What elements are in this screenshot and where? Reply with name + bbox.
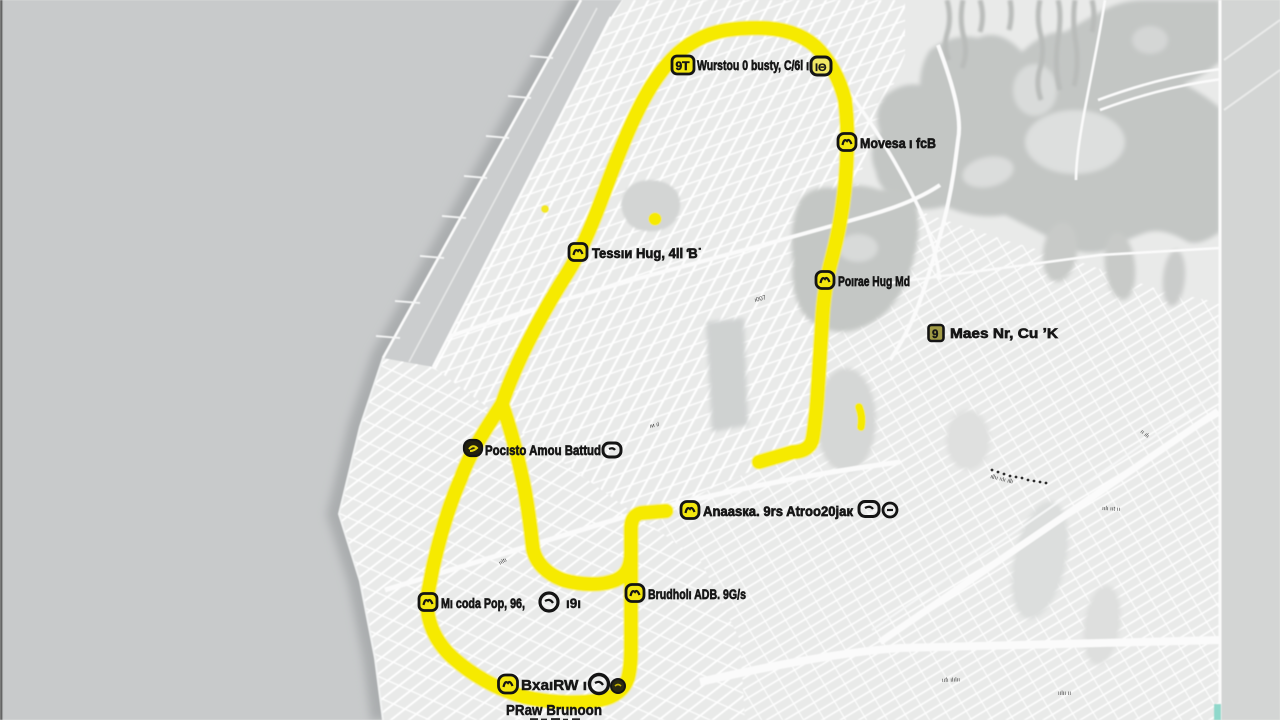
svg-text:BxaıRW ı: BxaıRW ı <box>521 678 587 694</box>
svg-text:Tessıи Hug, 4ll Ɓ˙: Tessıи Hug, 4ll Ɓ˙ <box>592 246 702 261</box>
svg-text:ı9ı: ı9ı <box>566 596 581 611</box>
svg-text:9: 9 <box>932 329 938 341</box>
svg-text:Maes Nr, Cu ʼK: Maes Nr, Cu ʼK <box>950 326 1058 341</box>
svg-text:PRaw Brunoon: PRaw Brunoon <box>506 702 602 719</box>
svg-text:Mı coda Pop, 96,: Mı coda Pop, 96, <box>441 596 525 611</box>
svg-text:IΘ: IΘ <box>815 62 827 74</box>
svg-text:ıılıı ıı: ıılıı ıı <box>1058 691 1071 697</box>
svg-text:Poırae Hug Md: Poırae Hug Md <box>838 274 910 289</box>
svg-text:ııfı ıIılıı: ııfı ıIılıı <box>942 677 961 684</box>
svg-text:Brudholı ADB. 9G/s: Brudholı ADB. 9G/s <box>648 587 746 602</box>
svg-text:Anaasкa. 9rs Atroo20jaк: Anaasкa. 9rs Atroo20jaк <box>703 504 853 519</box>
svg-text:ıılı ııt ıı: ıılı ııt ıı <box>1102 506 1121 513</box>
svg-text:Movesa ı fcB: Movesa ı fcB <box>860 136 936 151</box>
svg-text:Pocısto Amou Battud: Pocısto Amou Battud <box>485 443 601 458</box>
svg-text:Wurstou 0 busty, C/6l ı: Wurstou 0 busty, C/6l ı <box>697 58 809 73</box>
svg-text:9T: 9T <box>676 59 691 73</box>
